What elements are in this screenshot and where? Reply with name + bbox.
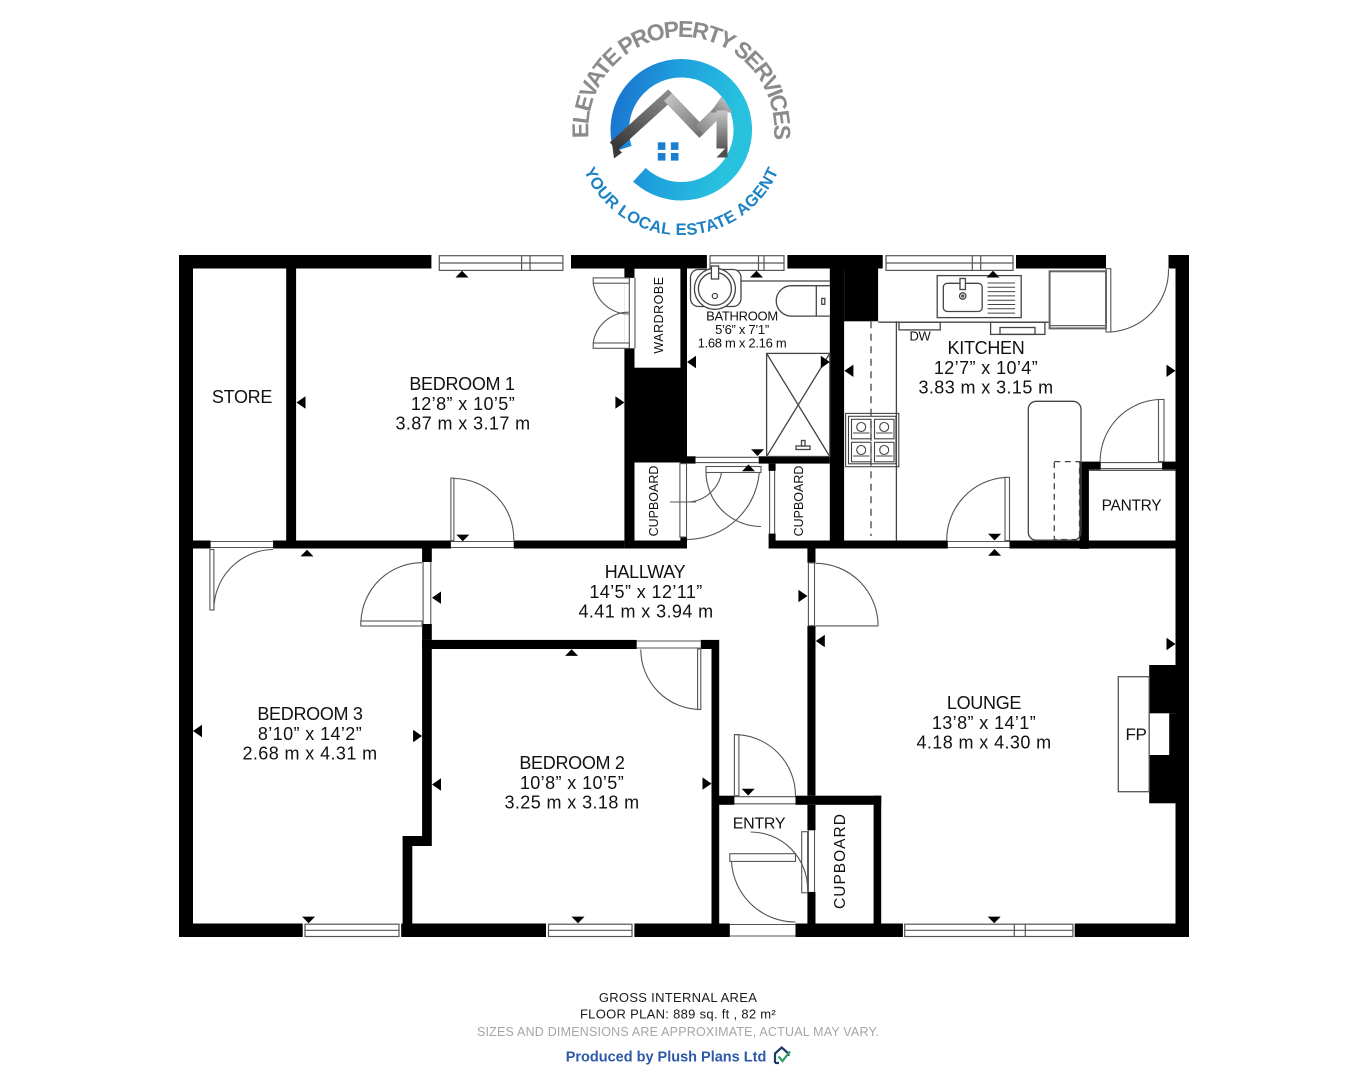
svg-text:3.25 m x 3.18 m: 3.25 m x 3.18 m: [504, 793, 639, 813]
svg-text:10’8” x 10’5”: 10’8” x 10’5”: [520, 773, 624, 793]
svg-text:12’7” x 10’4”: 12’7” x 10’4”: [934, 358, 1038, 378]
svg-text:3.87 m x 3.17 m: 3.87 m x 3.17 m: [395, 414, 530, 434]
svg-text:13’8” x 14’1”: 13’8” x 14’1”: [932, 713, 1036, 733]
svg-text:BEDROOM 3: BEDROOM 3: [257, 704, 363, 724]
svg-text:YOUR LOCAL ESTATE AGENT: YOUR LOCAL ESTATE AGENT: [580, 165, 782, 240]
svg-text:CUPBOARD: CUPBOARD: [647, 466, 661, 537]
svg-text:PANTRY: PANTRY: [1102, 498, 1162, 515]
svg-text:GROSS INTERNAL AREA: GROSS INTERNAL AREA: [599, 990, 757, 1005]
svg-text:FLOOR PLAN: 889 sq. ft , 82 m²: FLOOR PLAN: 889 sq. ft , 82 m²: [580, 1007, 776, 1022]
svg-text:KITCHEN: KITCHEN: [948, 338, 1025, 358]
svg-text:4.41 m x 3.94 m: 4.41 m x 3.94 m: [578, 602, 713, 622]
svg-text:STORE: STORE: [212, 387, 272, 407]
svg-text:FP: FP: [1125, 725, 1146, 744]
svg-text:BEDROOM 2: BEDROOM 2: [519, 753, 625, 773]
svg-text:ENTRY: ENTRY: [733, 816, 786, 833]
svg-text:2.68 m x 4.31 m: 2.68 m x 4.31 m: [242, 744, 377, 764]
svg-text:14’5” x 12’11”: 14’5” x 12’11”: [589, 582, 702, 602]
svg-text:Produced by Plush Plans Ltd: Produced by Plush Plans Ltd: [566, 1050, 767, 1066]
svg-text:CUPBOARD: CUPBOARD: [832, 813, 849, 909]
svg-text:SIZES AND DIMENSIONS ARE APPRO: SIZES AND DIMENSIONS ARE APPROXIMATE, AC…: [477, 1025, 879, 1039]
svg-text:WARDROBE: WARDROBE: [652, 276, 666, 353]
svg-text:DW: DW: [909, 329, 931, 344]
svg-text:12’8” x 10’5”: 12’8” x 10’5”: [411, 394, 515, 414]
svg-text:CUPBOARD: CUPBOARD: [792, 466, 806, 537]
svg-text:4.18 m x 4.30 m: 4.18 m x 4.30 m: [916, 733, 1051, 753]
svg-text:HALLWAY: HALLWAY: [605, 562, 686, 582]
svg-text:ELEVATE PROPERTY SERVICES: ELEVATE PROPERTY SERVICES: [567, 16, 795, 140]
svg-text:LOUNGE: LOUNGE: [947, 693, 1022, 713]
svg-text:3.83 m x 3.15 m: 3.83 m x 3.15 m: [918, 378, 1053, 398]
svg-text:1.68 m x 2.16 m: 1.68 m x 2.16 m: [698, 336, 787, 351]
svg-text:8’10” x 14’2”: 8’10” x 14’2”: [258, 724, 362, 744]
svg-text:BEDROOM 1: BEDROOM 1: [409, 374, 515, 394]
